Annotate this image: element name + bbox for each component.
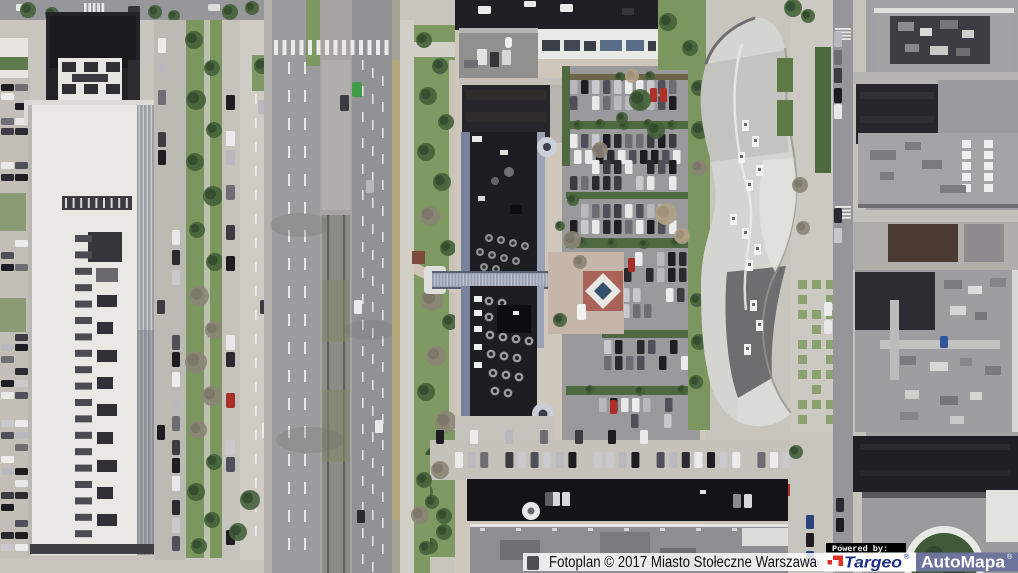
svg-text:®: ® — [1007, 553, 1013, 561]
svg-text:AutoMapa: AutoMapa — [921, 553, 1006, 572]
svg-text:®: ® — [904, 553, 910, 561]
svg-text:Fotoplan © 2017 Miasto Stołecz: Fotoplan © 2017 Miasto Stołeczne Warszaw… — [549, 554, 817, 571]
svg-text:Targeo: Targeo — [844, 555, 902, 572]
